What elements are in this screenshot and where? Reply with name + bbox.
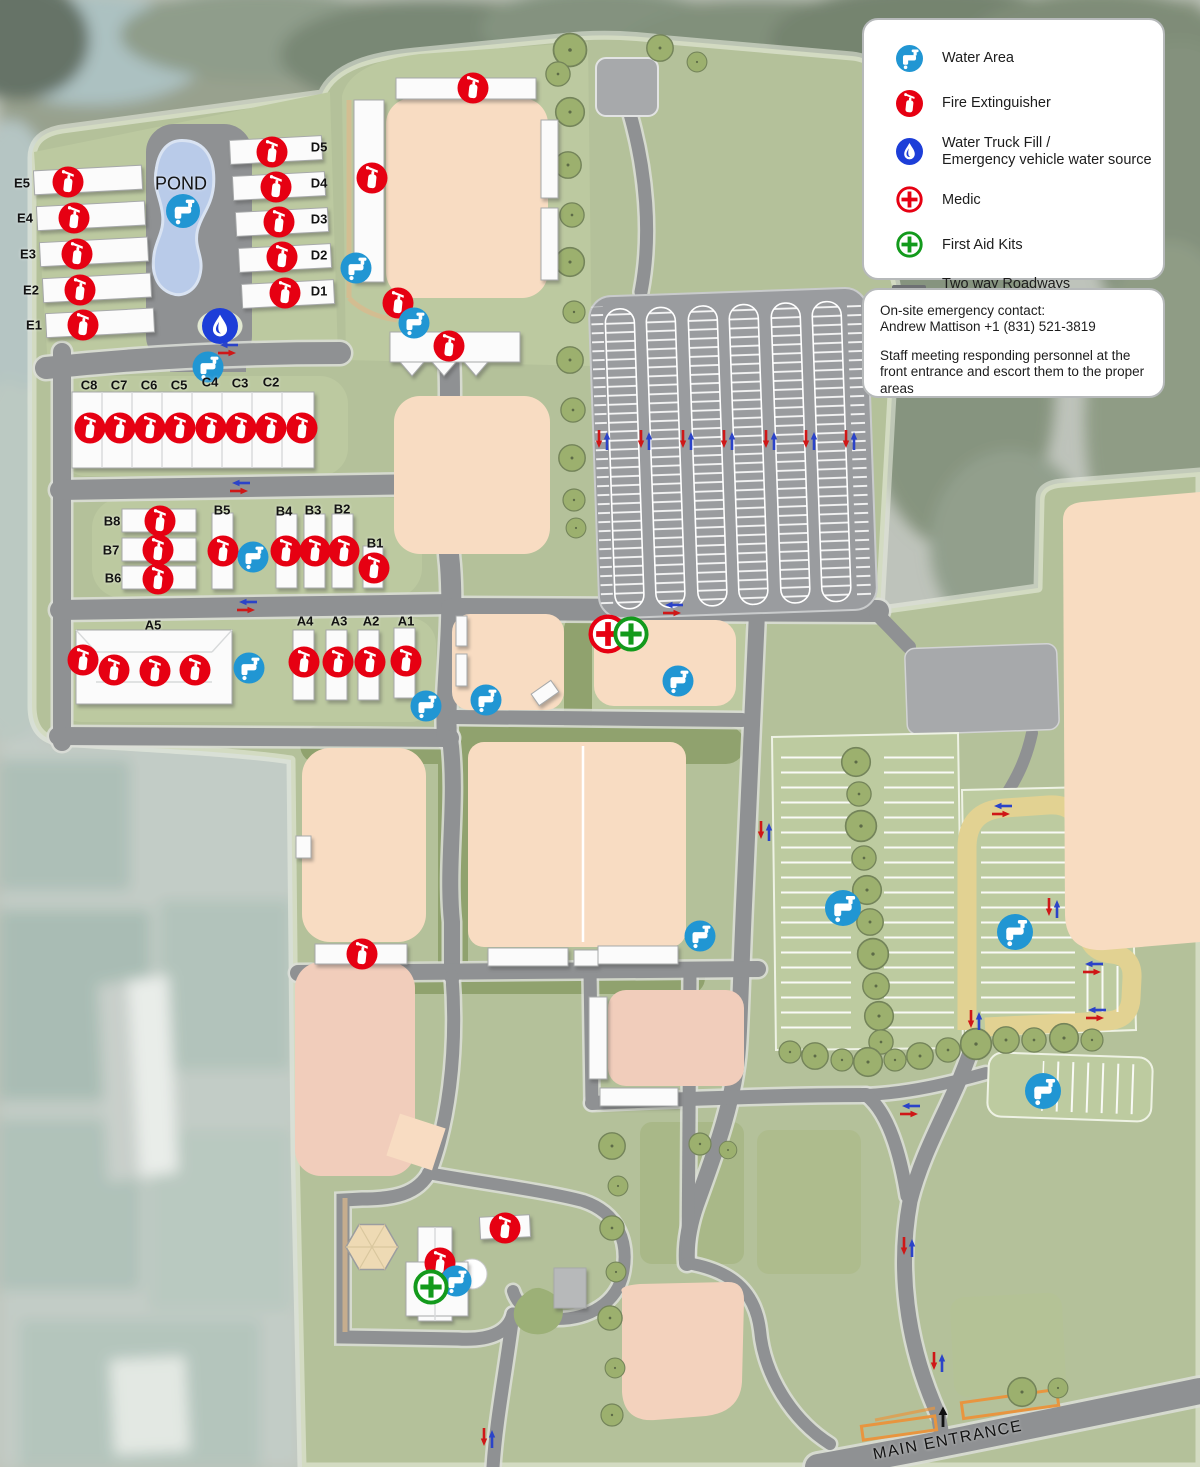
legend-item-medic: Medic xyxy=(864,177,1163,222)
legend-label: Water Truck Fill /Emergency vehicle wate… xyxy=(942,135,1152,168)
contact-line-2: Andrew Mattison +1 (831) 521-3819 xyxy=(880,319,1147,335)
water-tap-icon xyxy=(892,45,926,72)
contact-instructions: Staff meeting responding personnel at th… xyxy=(880,348,1147,397)
water-drop-icon xyxy=(892,138,926,165)
legend-item-water-tap: Water Area xyxy=(864,36,1163,81)
legend-label: Fire Extinguisher xyxy=(942,95,1051,112)
first-aid-icon xyxy=(892,231,926,258)
emergency-site-map: E5E4E3E2E1D5D4D3D2D1C8C7C6C5C4C3C2B8B7B6… xyxy=(0,0,1200,1467)
contact-line-1: On-site emergency contact: xyxy=(880,303,1147,319)
legend-item-water-drop: Water Truck Fill /Emergency vehicle wate… xyxy=(864,126,1163,177)
legend-label: Water Area xyxy=(942,50,1014,67)
legend-item-first-aid: First Aid Kits xyxy=(864,222,1163,267)
legend-item-fire-extinguisher: Fire Extinguisher xyxy=(864,81,1163,126)
legend-label: Medic xyxy=(942,192,981,209)
medic-icon xyxy=(892,186,926,213)
contact-panel: On-site emergency contact: Andrew Mattis… xyxy=(862,288,1165,398)
legend-panel: Water AreaFire ExtinguisherWater Truck F… xyxy=(862,18,1165,280)
fire-extinguisher-icon xyxy=(892,90,926,117)
legend-label: First Aid Kits xyxy=(942,237,1023,254)
